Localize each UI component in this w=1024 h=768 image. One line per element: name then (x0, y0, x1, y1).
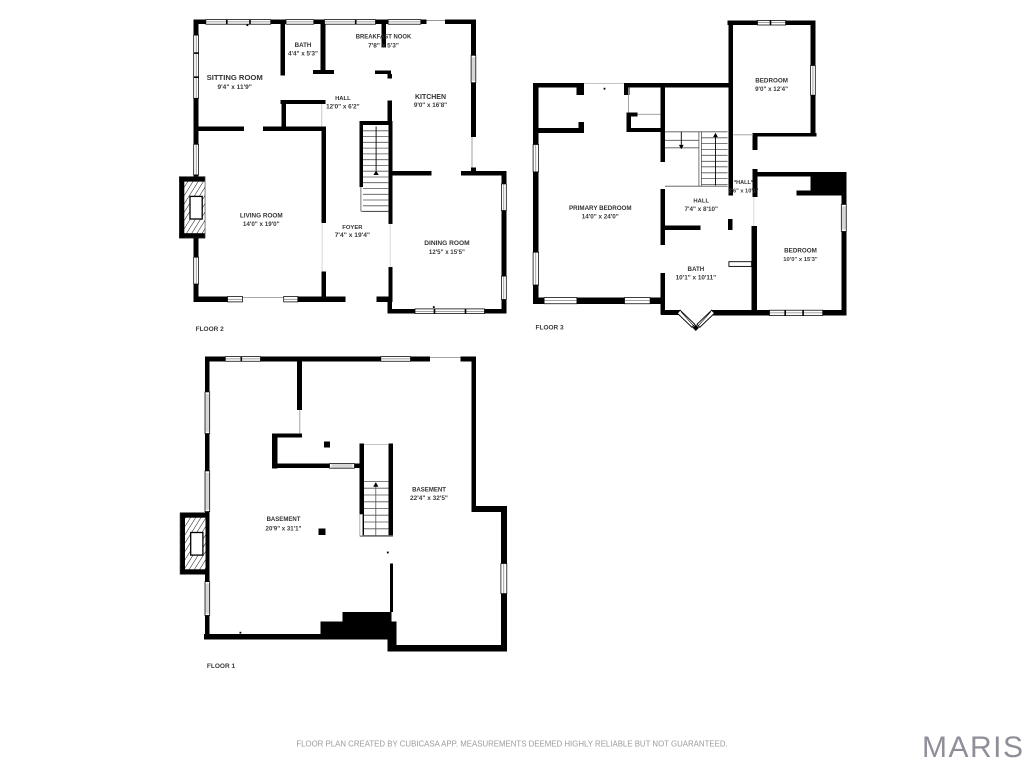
svg-text:FOYER: FOYER (342, 225, 363, 231)
svg-text:20'9" x 31'1": 20'9" x 31'1" (266, 526, 302, 533)
svg-text:22'4" x 32'5": 22'4" x 32'5" (410, 495, 448, 502)
svg-text:7'4" x 8'10": 7'4" x 8'10" (684, 206, 718, 213)
svg-text:FLOOR 3: FLOOR 3 (536, 325, 565, 332)
svg-text:9'0" x 16'8": 9'0" x 16'8" (414, 102, 447, 109)
svg-text:10'1" x 10'11": 10'1" x 10'11" (676, 275, 717, 282)
svg-text:PRIMARY BEDROOM: PRIMARY BEDROOM (569, 205, 632, 212)
svg-text:HALL: HALL (335, 96, 351, 102)
svg-text:14'0" x 19'0": 14'0" x 19'0" (243, 221, 280, 228)
svg-text:10'0" x 15'3": 10'0" x 15'3" (783, 257, 818, 263)
svg-text:14'0" x 24'0": 14'0" x 24'0" (582, 214, 619, 221)
svg-text:DINING ROOM: DINING ROOM (424, 240, 470, 247)
svg-text:LIVING ROOM: LIVING ROOM (240, 213, 283, 220)
svg-text:BASEMENT: BASEMENT (412, 488, 446, 494)
svg-text:MARIS: MARIS (922, 731, 1024, 764)
svg-text:KITCHEN: KITCHEN (415, 94, 446, 101)
svg-text:BREAKFAST NOOK: BREAKFAST NOOK (356, 35, 412, 41)
svg-text:BATH: BATH (688, 266, 705, 273)
svg-text:FLOOR 1: FLOOR 1 (207, 663, 236, 670)
svg-text:7'8" x 5'3": 7'8" x 5'3" (368, 42, 399, 49)
svg-text:12'0" x 6'2": 12'0" x 6'2" (326, 103, 360, 110)
svg-text:SITTING ROOM: SITTING ROOM (207, 73, 263, 82)
svg-text:HALL: HALL (693, 198, 709, 204)
svg-text:9'0" x 12'4": 9'0" x 12'4" (755, 86, 788, 93)
svg-text:FLOOR 2: FLOOR 2 (196, 326, 225, 333)
svg-text:FLOOR PLAN CREATED BY CUBICASA: FLOOR PLAN CREATED BY CUBICASA APP. MEAS… (296, 740, 727, 749)
svg-text:12'5" x 15'5": 12'5" x 15'5" (429, 249, 465, 256)
svg-text:7'4" x 19'4": 7'4" x 19'4" (335, 232, 370, 239)
svg-text:BEDROOM: BEDROOM (784, 248, 817, 255)
svg-text:9'4" x 11'9": 9'4" x 11'9" (218, 84, 252, 91)
svg-text:BATH: BATH (295, 42, 312, 49)
svg-text:4'4" x 5'3": 4'4" x 5'3" (288, 50, 318, 57)
svg-text:BEDROOM: BEDROOM (755, 78, 788, 85)
svg-text:2'6" x 10'1": 2'6" x 10'1" (729, 188, 759, 194)
svg-text:BASEMENT: BASEMENT (267, 517, 301, 523)
svg-text:*HALL*: *HALL* (734, 180, 754, 186)
